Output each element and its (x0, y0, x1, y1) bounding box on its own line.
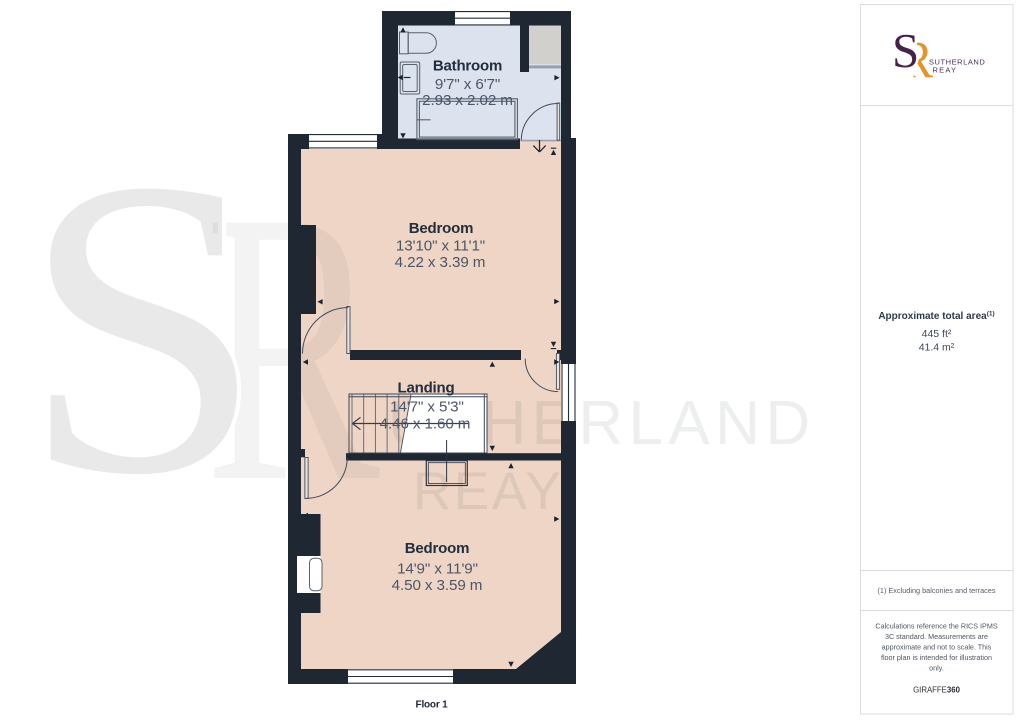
svg-text:41.4 m²: 41.4 m² (919, 342, 955, 354)
svg-text:4.22 x 3.39 m: 4.22 x 3.39 m (395, 254, 486, 271)
svg-text:2.93 x 2.02 m: 2.93 x 2.02 m (422, 92, 513, 109)
svg-text:only.: only. (929, 664, 944, 673)
svg-text:Floor 1: Floor 1 (416, 700, 449, 711)
svg-text:floor plan is intended for ill: floor plan is intended for illustration (881, 653, 992, 662)
svg-text:13'10" x 11'1": 13'10" x 11'1" (396, 237, 485, 254)
svg-text:Approximate total area(1): Approximate total area(1) (878, 311, 994, 323)
svg-text:S: S (21, 91, 264, 562)
svg-text:9'7" x 6'7": 9'7" x 6'7" (435, 76, 500, 93)
svg-text:3C standard. Measurements are: 3C standard. Measurements are (885, 632, 988, 641)
svg-text:approximate and not to scale.: approximate and not to scale. This (882, 643, 992, 652)
svg-text:S: S (892, 23, 919, 78)
svg-text:Calculations reference the RIC: Calculations reference the RICS IPMS (875, 622, 997, 631)
svg-text:Bedroom: Bedroom (409, 220, 473, 237)
svg-text:4.50 x 3.59 m: 4.50 x 3.59 m (392, 577, 483, 594)
svg-text:GIRAFFE360: GIRAFFE360 (913, 686, 960, 695)
svg-text:14'9" x 11'9": 14'9" x 11'9" (397, 561, 478, 578)
svg-text:14'7" x 5'3": 14'7" x 5'3" (390, 398, 464, 415)
svg-text:REAY: REAY (413, 462, 563, 521)
svg-text:Landing: Landing (398, 380, 455, 397)
svg-text:Bedroom: Bedroom (405, 540, 469, 557)
svg-text:Bathroom: Bathroom (433, 58, 502, 75)
svg-text:445 ft²: 445 ft² (922, 328, 952, 340)
svg-text:(1) Excluding balconies and te: (1) Excluding balconies and terraces (877, 586, 995, 595)
svg-text:REAY: REAY (933, 66, 958, 75)
svg-text:4.46 x 1.60 m: 4.46 x 1.60 m (380, 416, 471, 433)
